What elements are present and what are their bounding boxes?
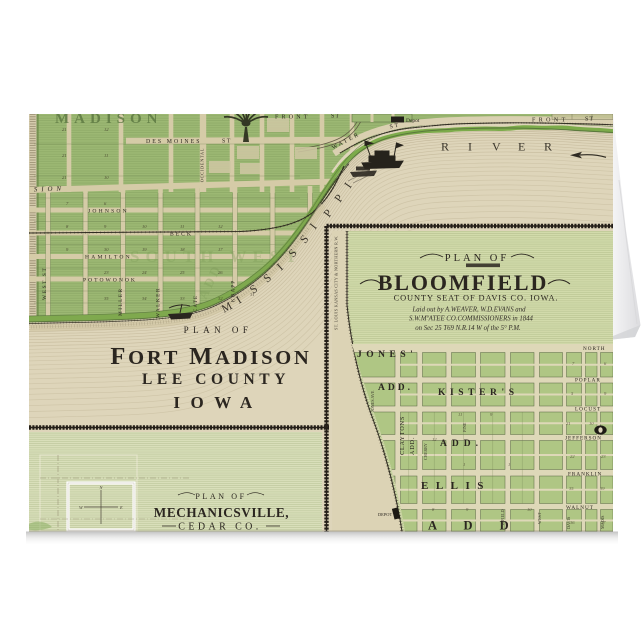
svg-text:JOHNSON: JOHNSON — [88, 208, 129, 214]
svg-text:ADD.: ADD. — [378, 383, 413, 393]
svg-text:JONES AVE: JONES AVE — [370, 390, 375, 412]
svg-text:IOWA: IOWA — [173, 393, 262, 412]
svg-text:25: 25 — [180, 270, 185, 275]
svg-text:COUNTY SEAT OF DAVIS CO. IOWA.: COUNTY SEAT OF DAVIS CO. IOWA. — [394, 294, 559, 303]
svg-text:23: 23 — [104, 270, 109, 275]
svg-text:PLAN OF: PLAN OF — [184, 325, 253, 335]
svg-text:17: 17 — [218, 247, 223, 252]
svg-text:Laid out by A.WEAVER, W.D.EVAN: Laid out by A.WEAVER, W.D.EVANS and — [412, 307, 527, 314]
svg-text:21: 21 — [566, 421, 571, 426]
svg-text:DAVIS: DAVIS — [566, 516, 571, 529]
svg-text:FORT MADISON: FORT MADISON — [110, 343, 311, 370]
svg-text:35: 35 — [104, 296, 109, 301]
svg-text:E: E — [518, 140, 525, 154]
svg-text:PLAN OF: PLAN OF — [195, 492, 246, 501]
svg-text:B.FIELD: B.FIELD — [500, 509, 505, 525]
svg-text:ADD.: ADD. — [440, 439, 483, 449]
svg-text:POTOWONOK: POTOWONOK — [83, 277, 137, 283]
svg-text:PINE: PINE — [462, 422, 467, 432]
svg-text:DES MOINES: DES MOINES — [146, 139, 202, 145]
svg-text:21: 21 — [62, 153, 67, 158]
svg-text:WEST ST: WEST ST — [42, 267, 48, 300]
svg-text:MECHANICSVILLE,: MECHANICSVILLE, — [154, 505, 289, 520]
svg-text:on Sec 25 T69 N.R.14 W of the: on Sec 25 T69 N.R.14 W of the 5° P.M. — [415, 325, 521, 332]
svg-text:R: R — [441, 140, 449, 154]
svg-text:DEPOT: DEPOT — [378, 512, 392, 517]
svg-text:26: 26 — [218, 270, 223, 275]
svg-text:PLAN OF: PLAN OF — [445, 253, 509, 264]
svg-text:MADIS: MADIS — [600, 515, 605, 529]
svg-text:10: 10 — [104, 175, 109, 180]
svg-text:21: 21 — [62, 175, 67, 180]
svg-text:E: E — [119, 505, 123, 510]
svg-text:WALNUT: WALNUT — [566, 505, 594, 511]
svg-text:22: 22 — [570, 454, 575, 459]
svg-text:30: 30 — [104, 247, 109, 252]
svg-text:JONES': JONES' — [357, 350, 417, 360]
svg-text:ELLIS: ELLIS — [421, 480, 491, 492]
svg-text:23: 23 — [601, 454, 606, 459]
svg-text:ADD.: ADD. — [410, 437, 416, 456]
svg-text:CHERRY: CHERRY — [423, 443, 428, 460]
svg-text:12: 12 — [432, 437, 437, 442]
svg-text:ST: ST — [222, 139, 232, 145]
svg-text:WEST: WEST — [537, 512, 542, 524]
svg-text:JEFFERSON: JEFFERSON — [565, 436, 602, 442]
svg-text:24: 24 — [142, 270, 147, 275]
svg-text:HAMILTON: HAMILTON — [85, 255, 132, 261]
svg-text:LOCUST: LOCUST — [575, 407, 601, 413]
svg-text:FRONT: FRONT — [532, 118, 569, 124]
svg-text:ST. LOUIS KANSAS CITY & NORTHE: ST. LOUIS KANSAS CITY & NORTHERN R.W. — [334, 236, 339, 330]
svg-text:LEE COUNTY: LEE COUNTY — [142, 371, 290, 388]
svg-text:W: W — [79, 505, 83, 510]
svg-text:I: I — [468, 140, 472, 154]
svg-text:11: 11 — [104, 153, 108, 158]
svg-text:CLAYTONS: CLAYTONS — [400, 416, 406, 455]
svg-text:10: 10 — [589, 421, 594, 426]
svg-text:ST: ST — [331, 114, 340, 120]
svg-text:BLOOMFIELD: BLOOMFIELD — [378, 270, 549, 295]
svg-text:18: 18 — [180, 247, 185, 252]
svg-text:POPLAR: POPLAR — [575, 378, 601, 384]
svg-text:A D D: A D D — [428, 519, 521, 533]
svg-text:V: V — [492, 140, 501, 154]
svg-text:NORTH: NORTH — [583, 346, 606, 352]
svg-text:1: 1 — [508, 462, 510, 467]
svg-text:11: 11 — [180, 224, 184, 229]
svg-text:S.W.MºATEE CO.COMMISSIONERS in: S.W.MºATEE CO.COMMISSIONERS in 1844 — [409, 316, 534, 323]
svg-text:Depot: Depot — [406, 118, 420, 124]
svg-text:FRANKLIN: FRANKLIN — [568, 472, 602, 478]
svg-text:MILLER: MILLER — [118, 288, 124, 316]
svg-text:SION: SION — [34, 185, 65, 193]
svg-text:32: 32 — [218, 296, 223, 301]
svg-text:33: 33 — [180, 296, 185, 301]
svg-text:34: 34 — [142, 296, 147, 301]
svg-text:FRONT: FRONT — [275, 115, 311, 121]
svg-text:BECK: BECK — [170, 231, 193, 237]
svg-text:1: 1 — [463, 462, 465, 467]
svg-text:10: 10 — [527, 507, 532, 512]
svg-text:12: 12 — [218, 224, 223, 229]
svg-text:OCCIDENTAL: OCCIDENTAL — [200, 148, 205, 182]
svg-text:21: 21 — [62, 127, 67, 132]
svg-text:WALKER: WALKER — [156, 287, 162, 318]
svg-text:35: 35 — [569, 486, 574, 491]
svg-text:KISTER'S: KISTER'S — [438, 388, 519, 398]
svg-text:11: 11 — [458, 412, 462, 417]
svg-text:12: 12 — [104, 127, 109, 132]
svg-text:10: 10 — [142, 224, 147, 229]
svg-text:39: 39 — [600, 486, 605, 491]
svg-text:R: R — [544, 140, 552, 154]
svg-text:19: 19 — [142, 247, 147, 252]
svg-text:ST: ST — [585, 117, 594, 123]
